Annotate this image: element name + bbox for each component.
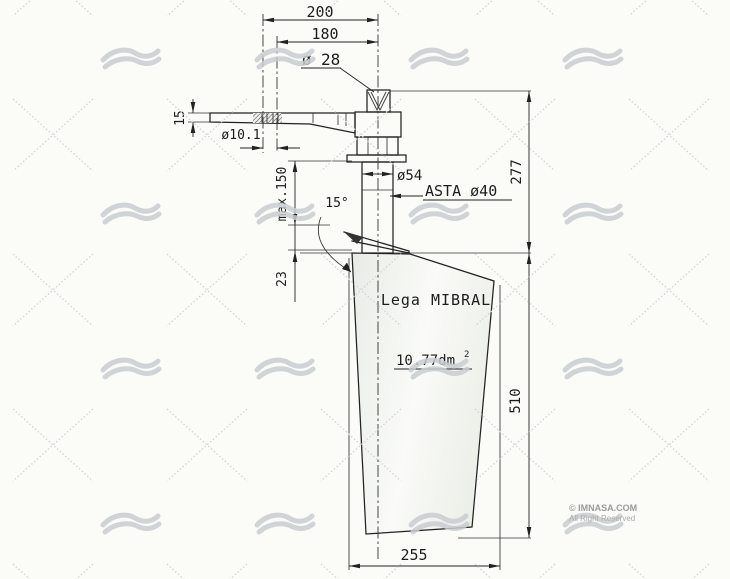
rudder-tube-and-stock (362, 162, 393, 253)
x-watermark-icon (13, 0, 93, 16)
dim-blade-width: 255 (400, 546, 427, 564)
hex-nut (357, 137, 398, 155)
x-watermark-icon (629, 99, 709, 171)
imnasa-wave-icon (565, 360, 621, 377)
label-shaft: ASTA ø40 (425, 182, 497, 200)
imnasa-wave-icon (103, 50, 159, 67)
x-watermark-icon (167, 409, 247, 481)
imnasa-wave-icon (103, 515, 159, 532)
x-watermark-icon (321, 99, 401, 171)
imnasa-wave-icon (257, 360, 313, 377)
x-watermark-icon (475, 0, 555, 16)
x-watermark-icon (13, 99, 93, 171)
label-surface-area-exponent: 2 (464, 350, 469, 360)
dim-offset: 23 (275, 271, 290, 287)
imnasa-wave-icon (411, 50, 467, 67)
dim-inner-width: 180 (311, 25, 338, 43)
copyright-line2: All Right Reserved (569, 514, 635, 523)
technical-drawing-page: 200 180 ø 28 15 ø10.1 ø54 ASTA ø40 15° m… (0, 0, 730, 579)
dim-arm-thickness: 15 (173, 110, 188, 126)
x-watermark-icon (167, 254, 247, 326)
x-watermark-icon (13, 409, 93, 481)
imnasa-wave-icon (565, 205, 621, 222)
imnasa-wave-icon (411, 205, 467, 222)
copyright-notice: © IMNASA.COM All Right Reserved (569, 503, 637, 523)
dim-upper-height: 277 (509, 159, 525, 184)
x-watermark-icon (167, 0, 247, 16)
rudder-technical-drawing: 200 180 ø 28 15 ø10.1 ø54 ASTA ø40 15° m… (0, 0, 730, 579)
flange (347, 155, 406, 162)
x-watermark-icon (629, 564, 709, 579)
x-watermark-icon (13, 564, 93, 579)
imnasa-wave-icon (565, 50, 621, 67)
threaded-stud (367, 90, 390, 112)
imnasa-wave-icon (103, 360, 159, 377)
dim-hole-diameter: ø10.1 (221, 128, 260, 143)
copyright-line1: © IMNASA.COM (569, 503, 637, 513)
imnasa-wave-icon (257, 515, 313, 532)
dim-blade-height: 510 (508, 388, 524, 413)
label-material: Lega MIBRAL (381, 291, 491, 309)
x-watermark-icon (629, 0, 709, 16)
x-watermark-icon (475, 409, 555, 481)
x-watermark-icon (13, 254, 93, 326)
dim-tube-diameter: ø54 (397, 168, 422, 184)
x-watermark-icon (629, 254, 709, 326)
x-watermark-icon (629, 409, 709, 481)
x-watermark-icon (167, 564, 247, 579)
dim-tilt-angle: 15° (325, 196, 348, 211)
dim-overall-width: 200 (306, 3, 333, 21)
imnasa-wave-icon (103, 205, 159, 222)
